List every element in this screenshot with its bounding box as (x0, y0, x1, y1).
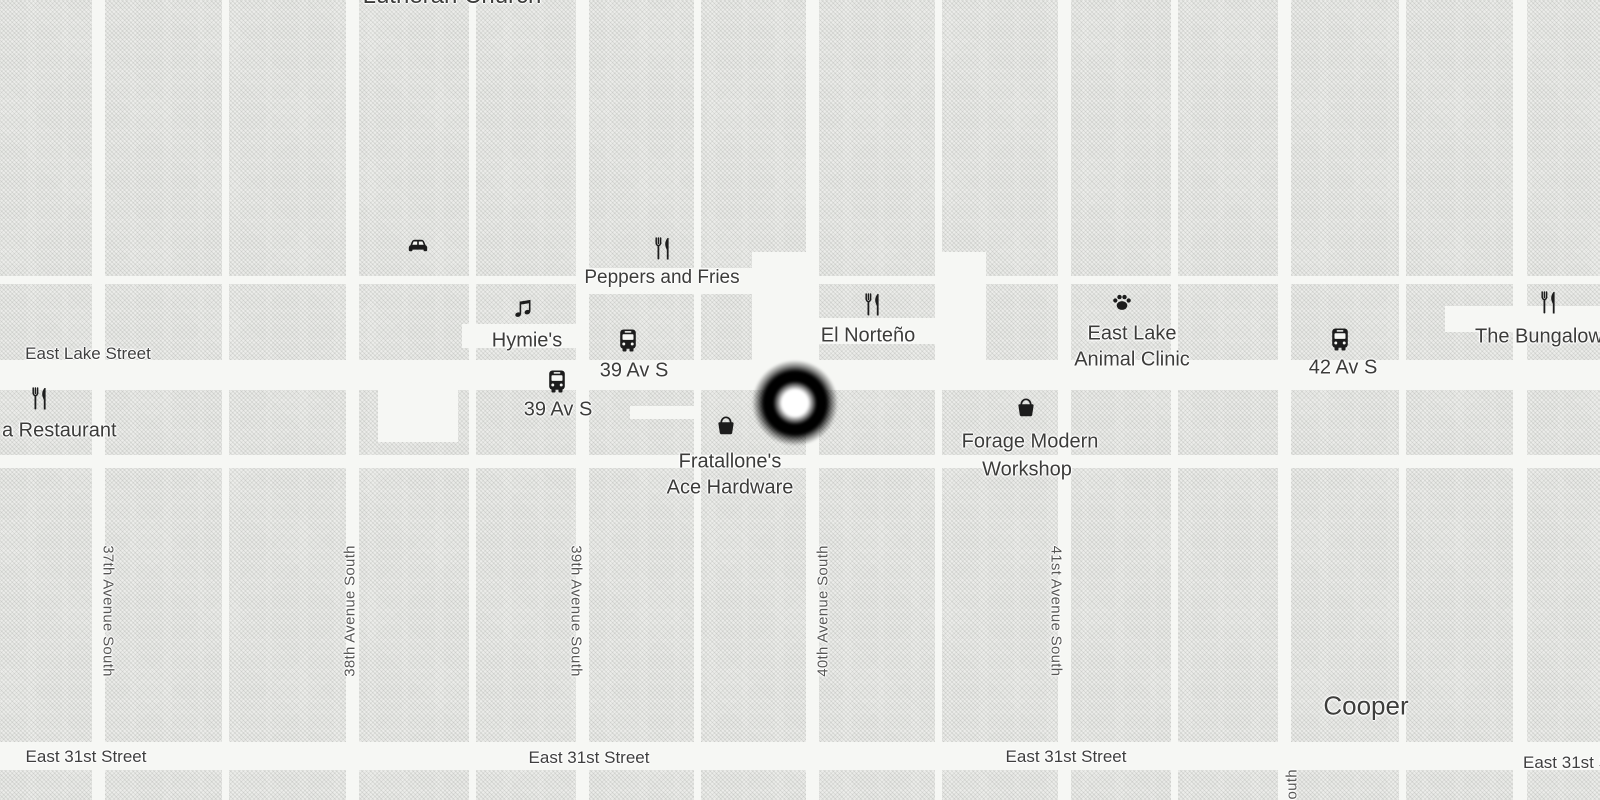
poi-el-norteno[interactable]: El Norteño (821, 325, 916, 348)
bus-stop-label[interactable]: 42 Av S (1309, 357, 1378, 380)
alley (935, 0, 942, 800)
poi-fratallones-line1[interactable]: Fratallone's (679, 451, 782, 474)
poi-fratallones-line2[interactable]: Ace Hardware (667, 477, 794, 500)
poi-hymies[interactable]: Hymie's (492, 330, 563, 353)
poi-animal-clinic-line2[interactable]: Animal Clinic (1074, 349, 1190, 372)
poi-restaurant-clipped[interactable]: a Restaurant (2, 420, 117, 443)
street-label-42nd-avenue-clipped: 42nd Avenue South (1284, 769, 1301, 800)
neighborhood-label-cooper: Cooper (1323, 691, 1408, 722)
alley (1399, 0, 1406, 800)
street-label-east-31st: East 31st Street (529, 748, 650, 768)
poi-lutheran-church[interactable]: Lutheran Church (363, 0, 542, 10)
road-east-32nd-street (0, 455, 1600, 468)
road-east-31st-street (0, 742, 1600, 770)
car-icon[interactable] (406, 237, 430, 256)
alley (1171, 0, 1178, 800)
bus-icon[interactable] (546, 368, 568, 394)
road-42nd-avenue (1278, 0, 1291, 800)
shopping-bag-icon[interactable] (1015, 398, 1038, 419)
alley (222, 0, 229, 800)
restaurant-icon[interactable] (652, 237, 672, 261)
bus-stop-label[interactable]: 39 Av S (524, 399, 593, 422)
alley (694, 0, 701, 800)
street-label-38th-avenue: 38th Avenue South (342, 545, 359, 677)
poi-the-bungalow[interactable]: The Bungalow (1475, 326, 1600, 349)
alley (469, 0, 476, 800)
poi-peppers-and-fries[interactable]: Peppers and Fries (584, 267, 739, 289)
street-label-east-31st: East 31st Street (26, 747, 147, 767)
poi-forage-line2[interactable]: Workshop (982, 459, 1072, 482)
street-label-40th-avenue: 40th Avenue South (815, 545, 832, 677)
bus-icon[interactable] (1329, 326, 1351, 352)
paw-icon[interactable] (1111, 292, 1134, 313)
street-label-39th-avenue: 39th Avenue South (568, 545, 585, 677)
bus-stop-label[interactable]: 39 Av S (600, 360, 669, 383)
parking-lot (936, 252, 986, 362)
music-icon[interactable] (511, 297, 535, 321)
restaurant-icon[interactable] (1538, 291, 1558, 315)
street-label-east-31st: East 31st Street (1006, 747, 1127, 767)
shopping-bag-icon[interactable] (715, 416, 738, 437)
poi-forage-line1[interactable]: Forage Modern (962, 431, 1099, 454)
map-canvas[interactable]: East Lake Street East 31st Street East 3… (0, 0, 1600, 800)
parking-lot (378, 386, 458, 442)
road-43rd-avenue (1513, 0, 1527, 800)
restaurant-icon[interactable] (29, 387, 49, 411)
dead-end-road (630, 406, 700, 419)
road-38th-avenue (346, 0, 359, 800)
street-label-east-31st-clipped: East 31st Street (1523, 753, 1600, 773)
poi-animal-clinic-line1[interactable]: East Lake (1088, 323, 1177, 346)
restaurant-icon[interactable] (862, 293, 882, 317)
street-label-41st-avenue: 41st Avenue South (1048, 546, 1065, 677)
street-label-37th-avenue: 37th Avenue South (100, 545, 117, 677)
road-41st-avenue (1058, 0, 1071, 800)
location-marker[interactable] (751, 359, 839, 447)
bus-icon[interactable] (617, 327, 639, 353)
road-37th-avenue (92, 0, 105, 800)
street-label-east-lake: East Lake Street (25, 344, 151, 364)
